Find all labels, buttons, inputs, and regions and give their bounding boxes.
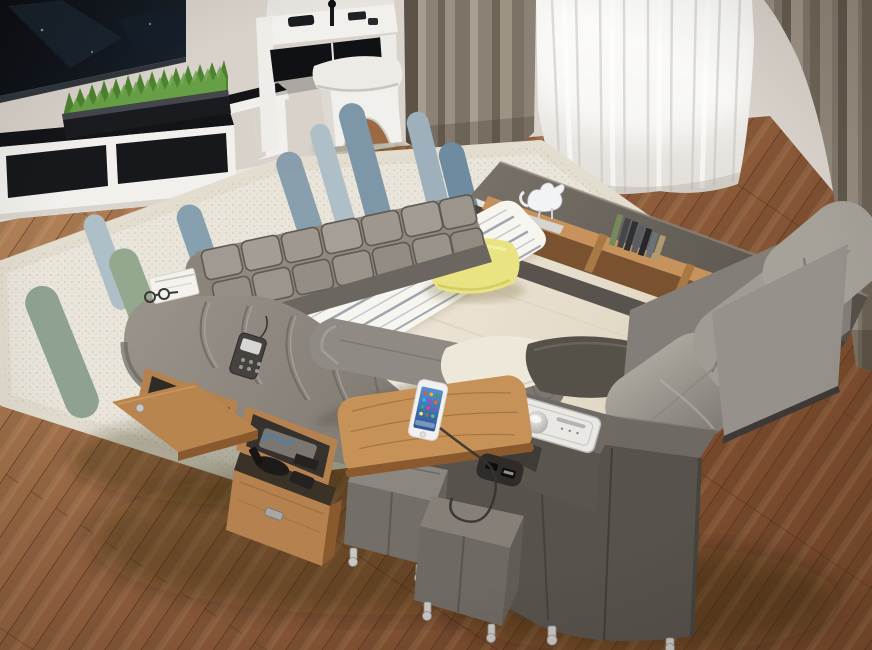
- bedroom-scene: [0, 0, 872, 650]
- vignette-overlay: [0, 0, 872, 650]
